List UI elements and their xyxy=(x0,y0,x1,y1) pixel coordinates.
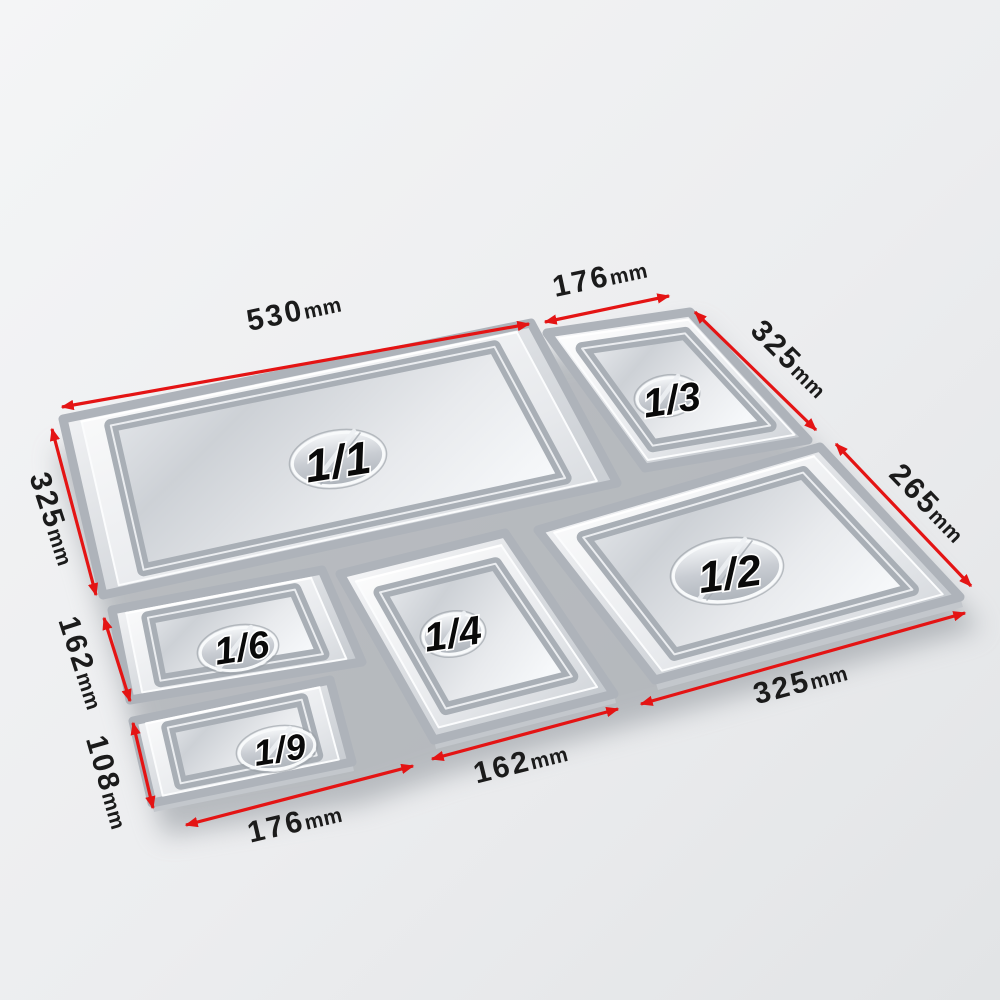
tray-size-label: 1/4 xyxy=(421,608,486,661)
product-dimension-diagram: 1/1 1/3 1/2 xyxy=(0,0,1000,1000)
diagram-canvas: 1/1 1/3 1/2 xyxy=(0,0,1000,1000)
tray-size-label: 1/2 xyxy=(695,546,765,603)
tray-size-label: 1/9 xyxy=(251,725,310,774)
tray-size-label: 1/1 xyxy=(301,431,375,493)
tray-size-label: 1/3 xyxy=(640,374,705,427)
tray-size-label: 1/6 xyxy=(211,624,273,674)
